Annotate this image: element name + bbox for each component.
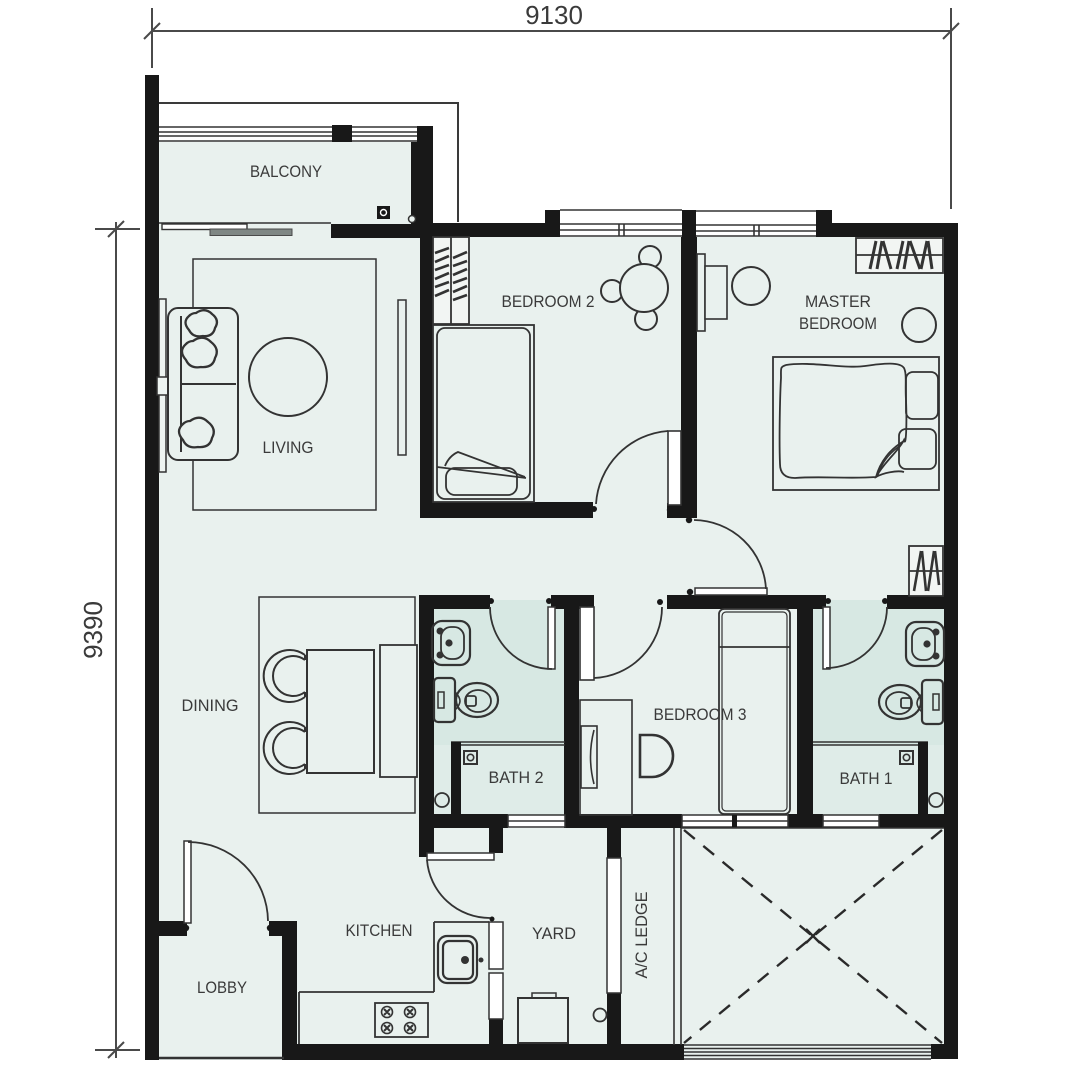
svg-text:BATH 1: BATH 1 [840, 769, 893, 788]
svg-text:BEDROOM 3: BEDROOM 3 [654, 705, 747, 724]
svg-text:KITCHEN: KITCHEN [346, 921, 413, 940]
svg-text:LOBBY: LOBBY [197, 978, 247, 997]
svg-text:BEDROOM 2: BEDROOM 2 [502, 292, 595, 311]
svg-text:9390: 9390 [78, 601, 108, 659]
svg-text:BEDROOM: BEDROOM [799, 314, 877, 333]
svg-text:DINING: DINING [182, 696, 239, 715]
svg-text:LIVING: LIVING [263, 438, 314, 457]
svg-text:MASTER: MASTER [805, 292, 871, 311]
svg-text:BALCONY: BALCONY [250, 162, 322, 181]
svg-text:YARD: YARD [532, 924, 576, 943]
svg-text:A/C LEDGE: A/C LEDGE [632, 892, 651, 979]
svg-text:BATH 2: BATH 2 [489, 768, 544, 787]
svg-text:9130: 9130 [525, 0, 583, 30]
